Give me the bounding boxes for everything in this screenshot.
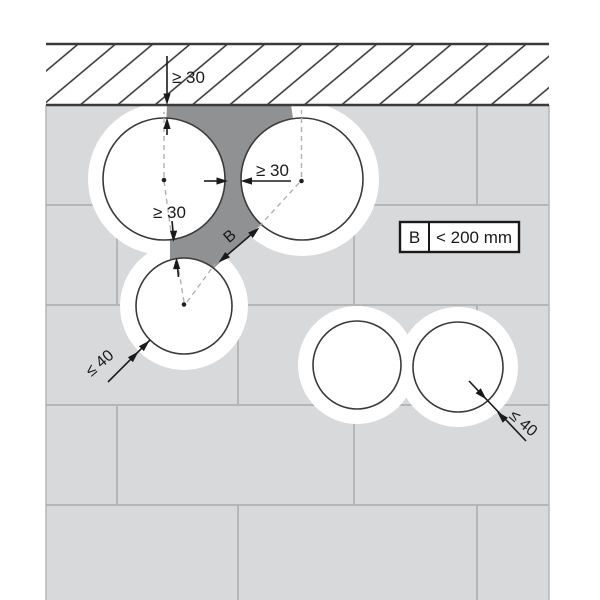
dim-pipe-gap-vertical-label: ≥ 30	[153, 203, 186, 222]
pipe-5	[413, 322, 503, 412]
dim-pipe-gap-horizontal-label: ≥ 30	[256, 161, 289, 180]
dim-slab-gap-label: ≥ 30	[172, 68, 205, 87]
pipes-in-wall-diagram: ≥ 30 ≥ 30 ≥ 30 B ≤ 40 ≤ 40	[0, 0, 600, 600]
legend-key: B	[409, 228, 420, 247]
pipe-4	[313, 321, 401, 409]
slab-hatch	[46, 44, 549, 105]
diagram-page: ≥ 30 ≥ 30 ≥ 30 B ≤ 40 ≤ 40	[0, 0, 600, 600]
legend-value: < 200 mm	[436, 228, 512, 247]
legend: B < 200 mm	[400, 222, 519, 252]
ceiling-slab	[46, 44, 549, 105]
